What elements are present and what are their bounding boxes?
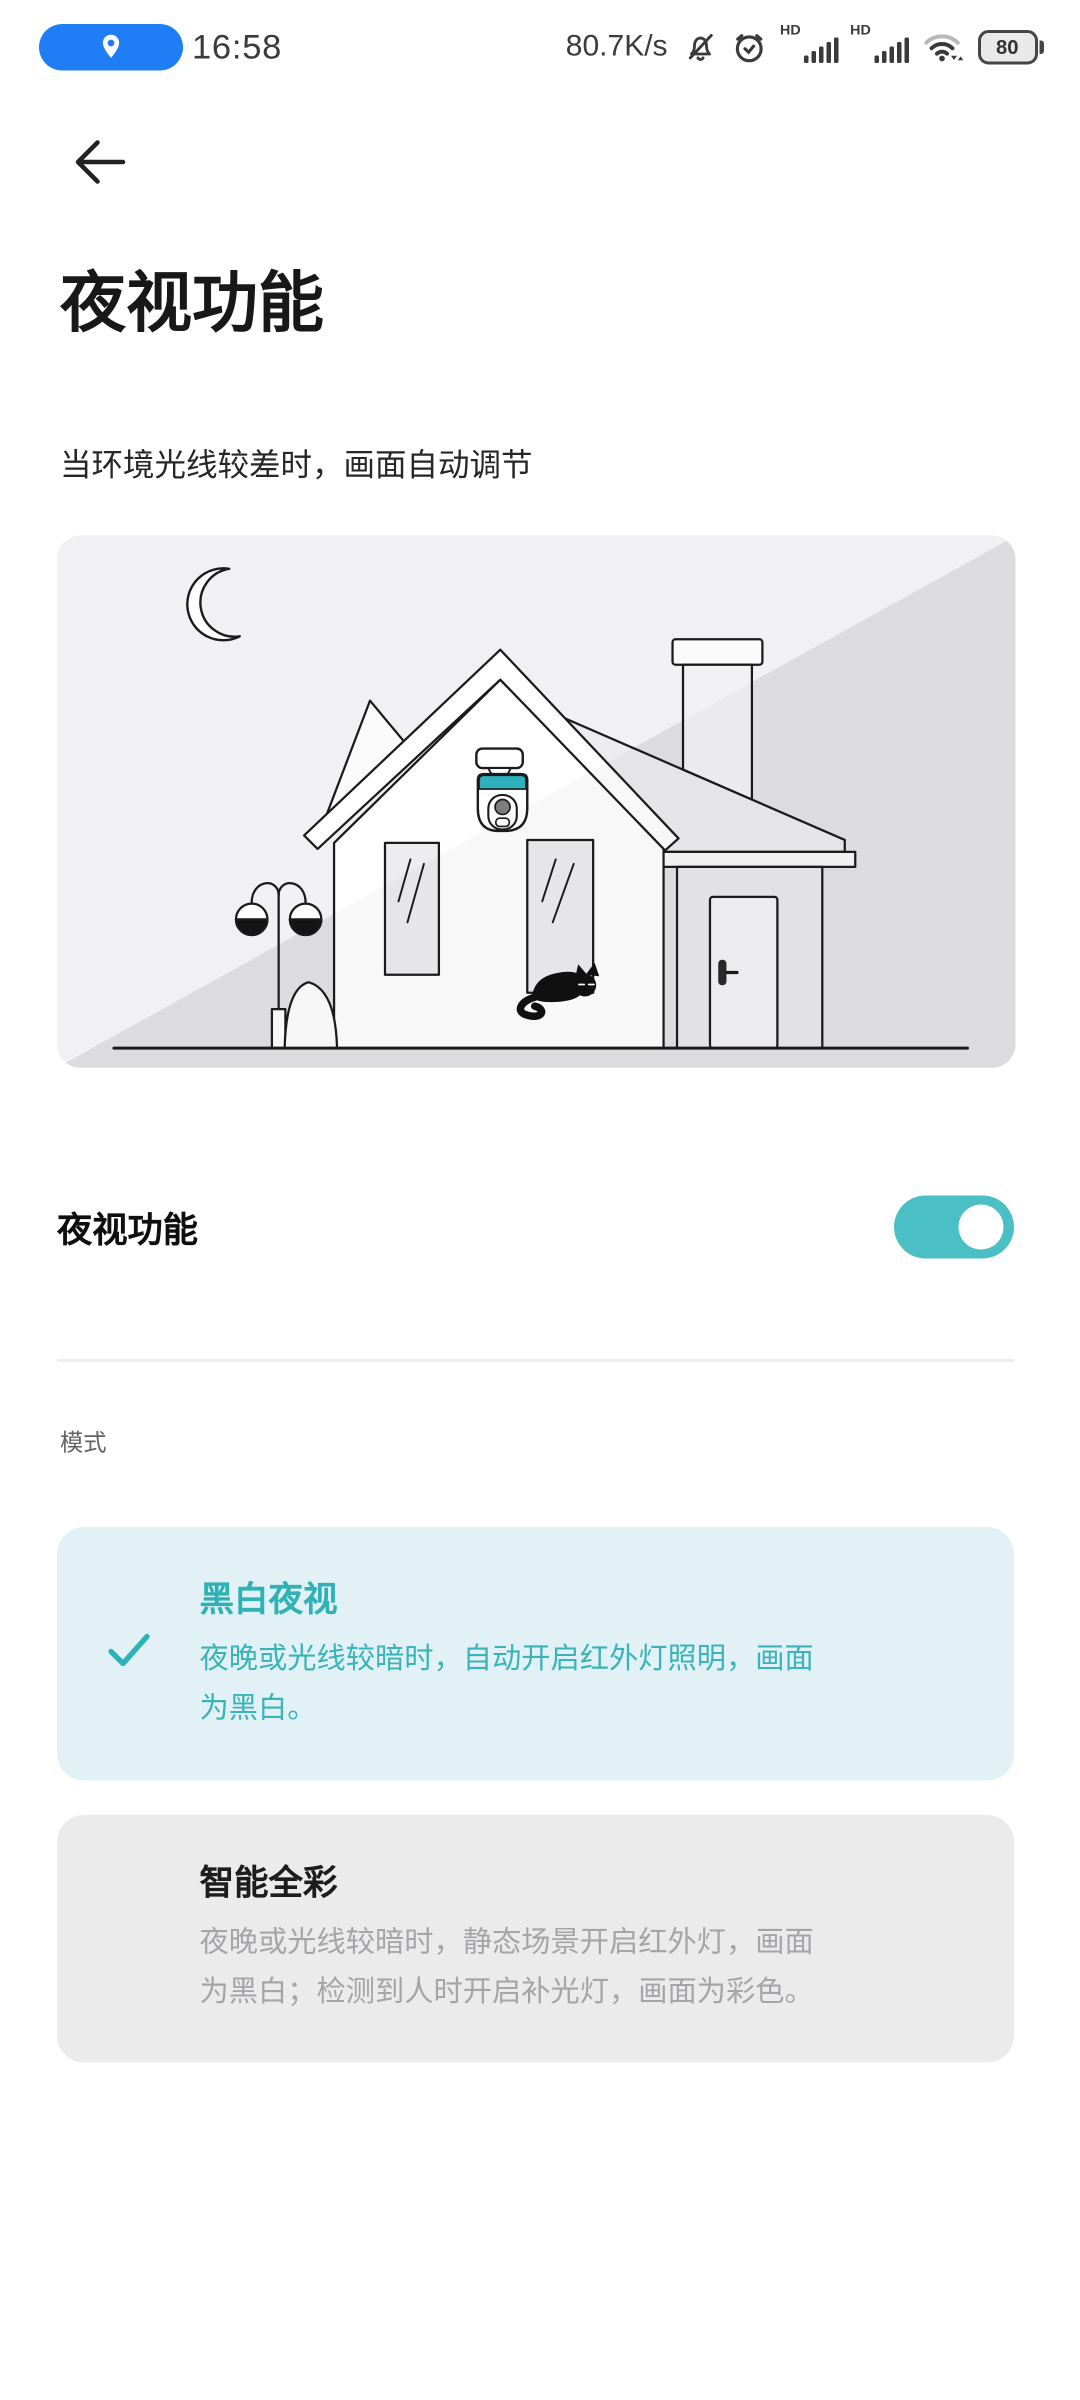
option-title: 智能全彩 <box>200 1853 955 1904</box>
night-vision-toggle[interactable] <box>894 1196 1014 1259</box>
screen: 16:58 80.7K/s HD <box>0 0 1080 2400</box>
location-pin-icon <box>96 32 126 62</box>
sim1-signal-icon: HD <box>780 23 838 70</box>
mode-section-label: 模式 <box>60 1424 1014 1457</box>
battery-icon: 80 <box>977 29 1044 64</box>
back-arrow-icon <box>72 138 129 186</box>
toggle-label: 夜视功能 <box>57 1202 198 1253</box>
chimney-cap <box>673 639 763 664</box>
location-pill <box>39 23 183 70</box>
sim1-hd-label: HD <box>780 23 801 38</box>
battery-percent: 80 <box>996 35 1019 58</box>
wifi-icon <box>920 29 965 65</box>
night-vision-illustration <box>57 536 1016 1069</box>
sim2-signal-icon: HD <box>850 23 908 70</box>
sim2-hd-label: HD <box>850 23 871 38</box>
option-description: 夜晚或光线较暗时，自动开启红外灯照明，画面为黑白。 <box>200 1634 827 1733</box>
alarm-clock-icon <box>731 28 769 66</box>
clock-time: 16:58 <box>192 26 282 67</box>
mode-option-smart-color[interactable]: 智能全彩 夜晚或光线较暗时，静态场景开启红外灯，画面为黑白；检测到人时开启补光灯… <box>57 1814 1014 2062</box>
network-speed: 80.7K/s <box>566 29 668 64</box>
toggle-knob <box>959 1205 1004 1250</box>
option-description: 夜晚或光线较暗时，静态场景开启红外灯，画面为黑白；检测到人时开启补光灯，画面为彩… <box>200 1918 827 2017</box>
house-illustration <box>57 536 1016 1069</box>
status-bar: 16:58 80.7K/s HD <box>0 0 1080 81</box>
divider <box>57 1359 1014 1361</box>
option-title: 黑白夜视 <box>200 1570 955 1621</box>
check-icon <box>106 1632 151 1671</box>
muted-bell-icon <box>683 29 719 65</box>
night-vision-toggle-row: 夜视功能 <box>57 1188 1014 1266</box>
page-title: 夜视功能 <box>60 261 1014 348</box>
page-subtitle: 当环境光线较差时，画面自动调节 <box>60 441 1014 486</box>
back-button[interactable] <box>72 132 138 192</box>
mode-option-black-white[interactable]: 黑白夜视 夜晚或光线较暗时，自动开启红外灯照明，画面为黑白。 <box>57 1526 1014 1780</box>
